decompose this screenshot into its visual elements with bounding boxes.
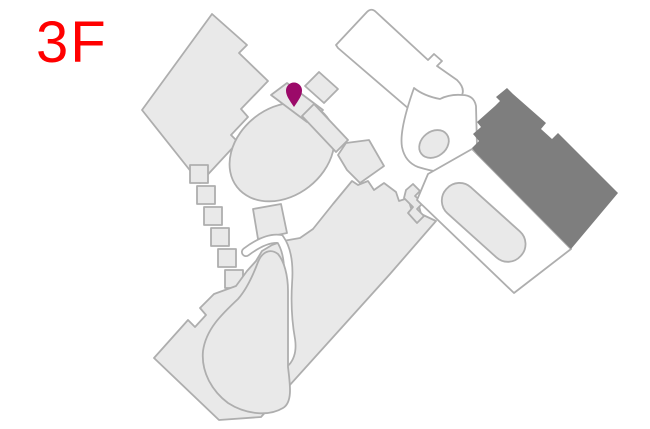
wedge-room[interactable] <box>338 140 384 183</box>
small-square-room[interactable] <box>253 204 287 239</box>
southwest-wing[interactable] <box>154 181 436 420</box>
corridor-block-upper[interactable] <box>305 72 338 103</box>
floor-map <box>0 0 650 429</box>
floor-map-view: 3F <box>0 0 650 429</box>
